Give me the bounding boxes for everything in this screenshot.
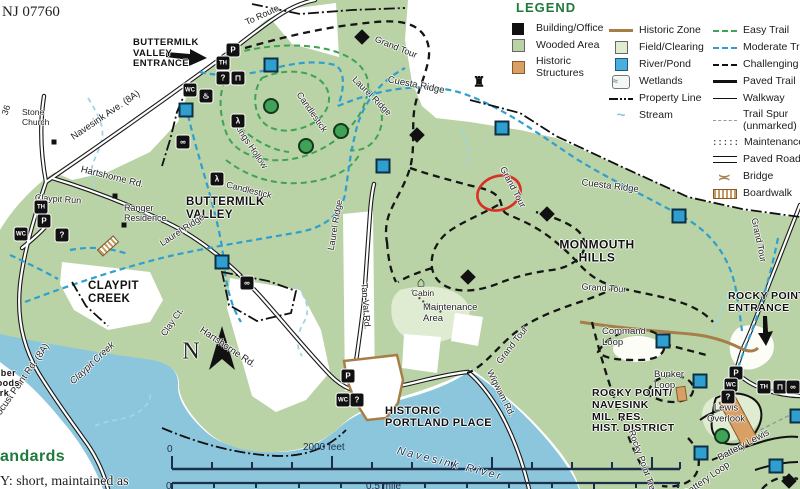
huber-woods-park-label: Huber Woods Park [0, 368, 20, 398]
picnic-icon: ⊓ [774, 381, 787, 394]
info-icon: ? [722, 391, 735, 404]
command-loop-label: Command Loop [602, 327, 646, 348]
moderate-trail-marker [215, 255, 230, 270]
info-icon: ? [217, 72, 230, 85]
easy-trail-marker [714, 428, 730, 444]
trailhead-icon: TH [217, 57, 230, 70]
scale-mile-zero: 0 [166, 481, 172, 489]
moderate-trail-marker [376, 159, 391, 174]
cabin-label: Cabin [412, 289, 434, 299]
claypit-creek-area-label: CLAYPIT CREEK [88, 280, 139, 306]
building-trail-marker [113, 194, 118, 199]
hiker-icon: λ [232, 115, 245, 128]
restroom-icon: WC [15, 228, 28, 241]
info-icon: ? [56, 229, 69, 242]
park-map: NJ 07760BUTTERMILK VALLEY ENTRANCETo Rou… [0, 0, 800, 489]
trailhead-icon: TH [35, 201, 48, 214]
lewis-overlook-label: Lewis Overlook [707, 403, 745, 424]
scale-feet-label: 2000 feet [303, 442, 345, 453]
info-icon: ? [351, 394, 364, 407]
trailhead-icon: TH [758, 381, 771, 394]
trail-standards-body-fragment: Y: short, maintained as [0, 474, 129, 489]
historic-portland-place-label: HISTORIC PORTLAND PLACE [385, 405, 492, 430]
ranger-residence-label: Ranger Residence [124, 203, 167, 223]
easy-trail-marker [298, 138, 314, 154]
moderate-trail-marker [693, 374, 708, 389]
trail-standards-heading-fragment: andards [0, 448, 65, 466]
building-trail-marker [52, 140, 57, 145]
buttermilk-valley-entrance-label: BUTTERMILK VALLEY ENTRANCE [133, 38, 199, 70]
monmouth-hills-label: MONMOUTH HILLS [559, 239, 634, 266]
parking-icon: P [342, 370, 355, 383]
easy-trail-marker [263, 98, 279, 114]
moderate-trail-marker [495, 121, 510, 136]
restroom-icon: WC [337, 394, 350, 407]
restroom-icon: WC [184, 84, 197, 97]
binoculars-icon: ∞ [787, 381, 800, 394]
picnic-icon: ⊓ [232, 72, 245, 85]
moderate-trail-marker [790, 409, 800, 424]
binoculars-icon: ∞ [241, 277, 254, 290]
moderate-trail-marker [672, 209, 687, 224]
moderate-trail-marker [656, 334, 671, 349]
scale-feet-zero: 0 [167, 444, 173, 455]
rocky-point-district-label: ROCKY POINT/ NAVESINK MIL. RES. HIST. DI… [592, 388, 675, 435]
moderate-trail-marker [769, 459, 784, 474]
tower-icon: ♜ [473, 76, 486, 89]
moderate-trail-marker [179, 103, 194, 118]
rocky-point-entrance-label: ROCKY POINT ENTRANCE [728, 291, 800, 315]
cabin-icon: ⌂ [415, 275, 428, 288]
north-label: N [182, 339, 199, 366]
easy-trail-marker [333, 123, 349, 139]
hiker-icon: λ [211, 173, 224, 186]
moderate-trail-marker [694, 446, 709, 461]
maintenance-area-label: Maintenance Area [423, 303, 477, 324]
binoculars-icon: ∞ [177, 136, 190, 149]
drinking-water-icon: ♨ [200, 90, 213, 103]
parking-icon: P [38, 215, 51, 228]
parking-icon: P [227, 44, 240, 57]
building-trail-marker [122, 223, 127, 228]
stone-church-label: Stone Church [22, 108, 49, 127]
scale-mile-label: 0.5 mile [366, 481, 401, 489]
moderate-trail-marker [264, 58, 279, 73]
zip-code: NJ 07760 [2, 4, 60, 21]
